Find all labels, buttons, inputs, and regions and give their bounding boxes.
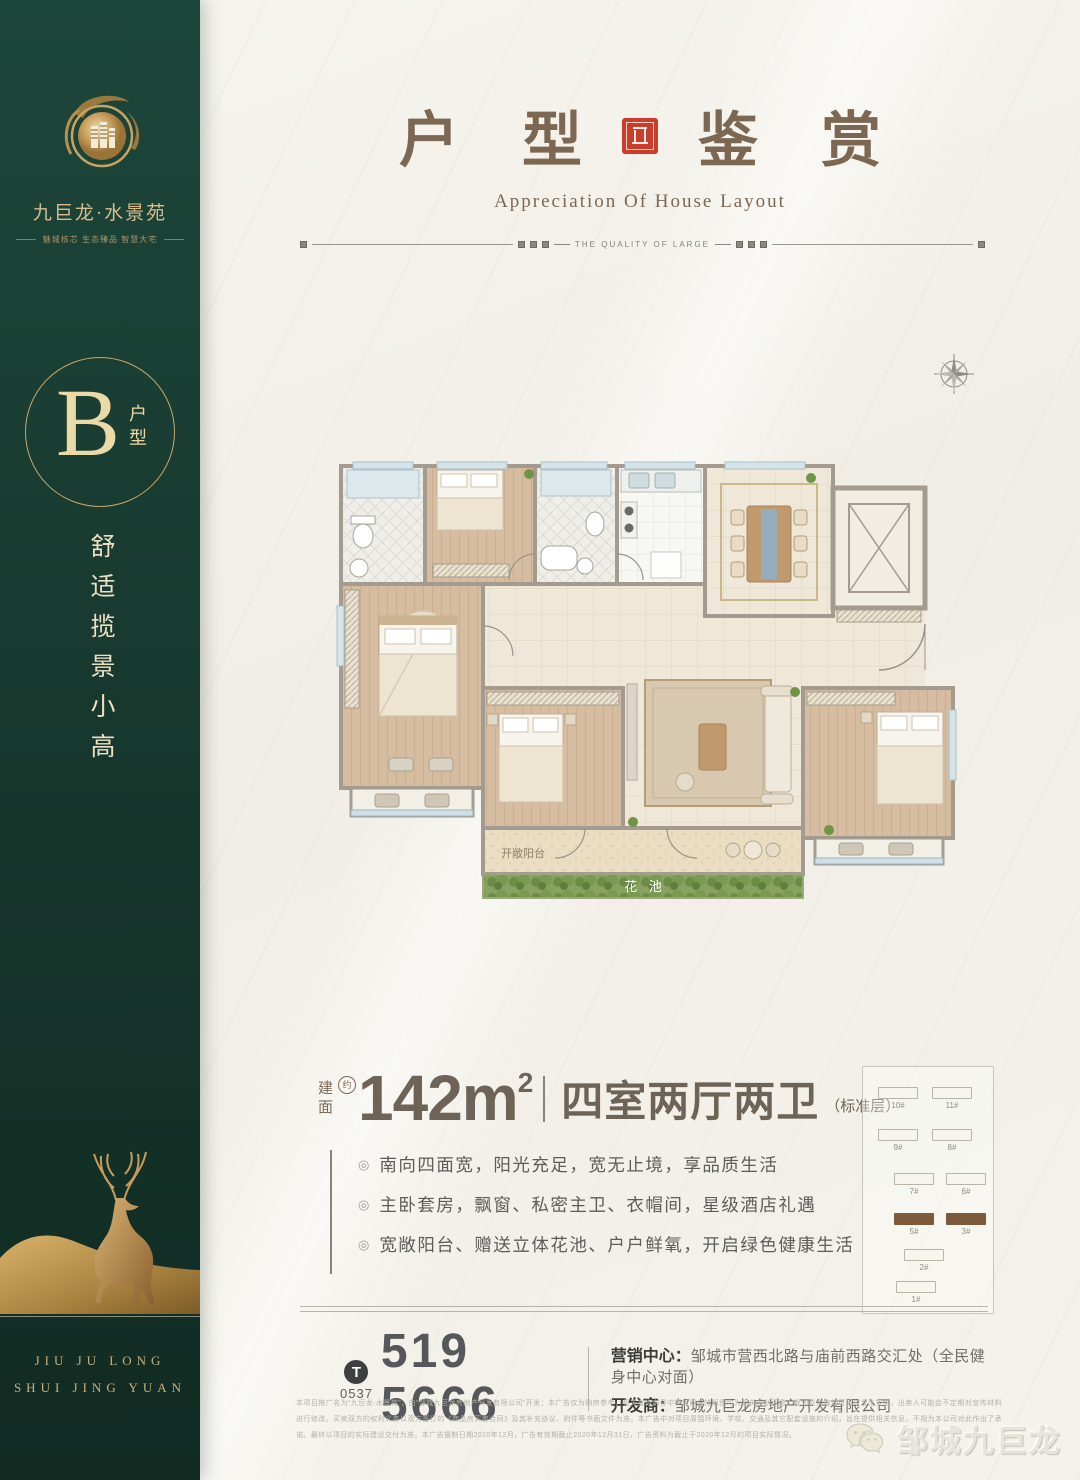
page-title: 户 型 鉴 赏	[375, 92, 905, 179]
building-3-highlighted: 3#	[943, 1213, 989, 1236]
living-room	[627, 680, 793, 806]
unit-type-letter: B	[56, 370, 120, 476]
flower-bed-label: 花 池	[624, 879, 666, 894]
master-bay-window	[351, 788, 473, 816]
sidebar-separator	[0, 1316, 200, 1317]
site-key-plan: 10# 11# 9# 8# 7# 6# 5# 3# 2# 1#	[862, 1066, 994, 1314]
bedroom-2	[483, 688, 623, 828]
bullet-icon: ◎	[358, 1197, 369, 1213]
bedroom-3	[803, 688, 953, 838]
divider-square	[300, 241, 307, 248]
divider-line	[312, 244, 513, 245]
balcony-label: 开敞阳台	[501, 846, 545, 860]
tagline-line-right	[164, 239, 184, 240]
red-seal-icon	[622, 118, 658, 154]
brand-tagline: 魅城核芯 生态臻品 智慧大宅	[16, 234, 184, 245]
unit-type-suffix: 户型	[124, 404, 150, 452]
feature-item: ◎ 南向四面宽，阳光充足，宽无止境，享品质生活	[358, 1152, 854, 1177]
wechat-account-name: 邹城九巨龙	[897, 1416, 1062, 1461]
bullet-icon: ◎	[358, 1157, 369, 1173]
contact-separator	[300, 1306, 988, 1312]
divider-text: THE QUALITY OF LARGE	[575, 240, 710, 249]
brand-emblem-icon	[45, 84, 155, 188]
layout-text: 四室两厅两卫	[561, 1068, 819, 1129]
sidebar: 九巨龙·水景苑 魅城核芯 生态臻品 智慧大宅 B 户型 舒适揽景小高	[0, 0, 200, 1480]
footer-line-2: SHUI JING YUAN	[0, 1380, 200, 1396]
building-1: 1#	[893, 1281, 939, 1304]
building-8: 8#	[929, 1129, 975, 1152]
elevator	[833, 488, 925, 608]
dining-room	[705, 466, 833, 616]
building-5-highlighted: 5#	[891, 1213, 937, 1236]
building-9: 9#	[875, 1129, 921, 1152]
telephone-icon: T	[344, 1360, 368, 1384]
title-right: 鉴 赏	[674, 92, 905, 179]
area-value: 142m2	[358, 1068, 533, 1129]
poster: 九巨龙·水景苑 魅城核芯 生态臻品 智慧大宅 B 户型 舒适揽景小高	[0, 0, 1080, 1480]
kitchen	[617, 466, 705, 584]
brand-name: 九巨龙·水景苑	[33, 198, 167, 225]
compass-icon	[930, 350, 978, 398]
floorplan: 开敞阳台 花 池	[333, 458, 965, 906]
feature-list: ◎ 南向四面宽，阳光充足，宽无止境，享品质生活 ◎ 主卧套房，飘窗、私密主卫、衣…	[330, 1150, 854, 1274]
building-2: 2#	[901, 1249, 947, 1272]
master-bedroom	[341, 584, 483, 788]
tagline-line-left	[16, 239, 36, 240]
wechat-block: 邹城九巨龙	[845, 1416, 1062, 1461]
bedroom-top	[425, 466, 535, 584]
approx-circle: 约	[338, 1076, 356, 1094]
bathroom-2	[535, 466, 617, 584]
feature-item: ◎ 主卧套房，飘窗、私密主卫、衣帽间，星级酒店礼遇	[358, 1192, 854, 1217]
area-prefix: 建 面	[318, 1080, 334, 1118]
page-subtitle: Appreciation Of House Layout	[200, 191, 1080, 213]
flower-bed: 花 池	[483, 874, 803, 898]
sidebar-footer: JIU JU LONG SHUI JING YUAN	[0, 1342, 200, 1396]
wechat-icon	[845, 1421, 887, 1457]
bathroom-1	[341, 466, 425, 584]
sidebar-slogan: 舒适揽景小高	[82, 533, 118, 773]
header-divider: THE QUALITY OF LARGE	[300, 240, 985, 249]
marketing-center-row: 营销中心：邹城市营西北路与庙前西路交汇处（全民健身中心对面）	[611, 1342, 988, 1387]
deer-illustration	[0, 1138, 200, 1314]
footer-line-1: JIU JU LONG	[0, 1353, 200, 1369]
unit-type-badge: B 户型	[25, 357, 175, 507]
feature-item: ◎ 宽敞阳台、赠送立体花池、户户鲜氧，开启绿色健康生活	[358, 1232, 854, 1257]
title-left: 户 型	[375, 92, 606, 179]
spec-divider	[543, 1076, 545, 1122]
deer	[94, 1152, 154, 1304]
building-11: 11#	[929, 1087, 975, 1110]
bullet-icon: ◎	[358, 1237, 369, 1253]
building-10: 10#	[875, 1087, 921, 1110]
marketing-center-label: 营销中心：	[611, 1348, 691, 1365]
balcony: 开敞阳台	[483, 828, 803, 874]
page-header: 户 型 鉴 赏 Appreciation Of House Layout	[200, 92, 1080, 213]
bedroom3-bay-window	[815, 838, 943, 864]
spec-row: 建 面 约 142m2 四室两厅两卫 （标准层）	[318, 1068, 900, 1129]
building-6: 6#	[943, 1173, 989, 1196]
building-7: 7#	[891, 1173, 937, 1196]
